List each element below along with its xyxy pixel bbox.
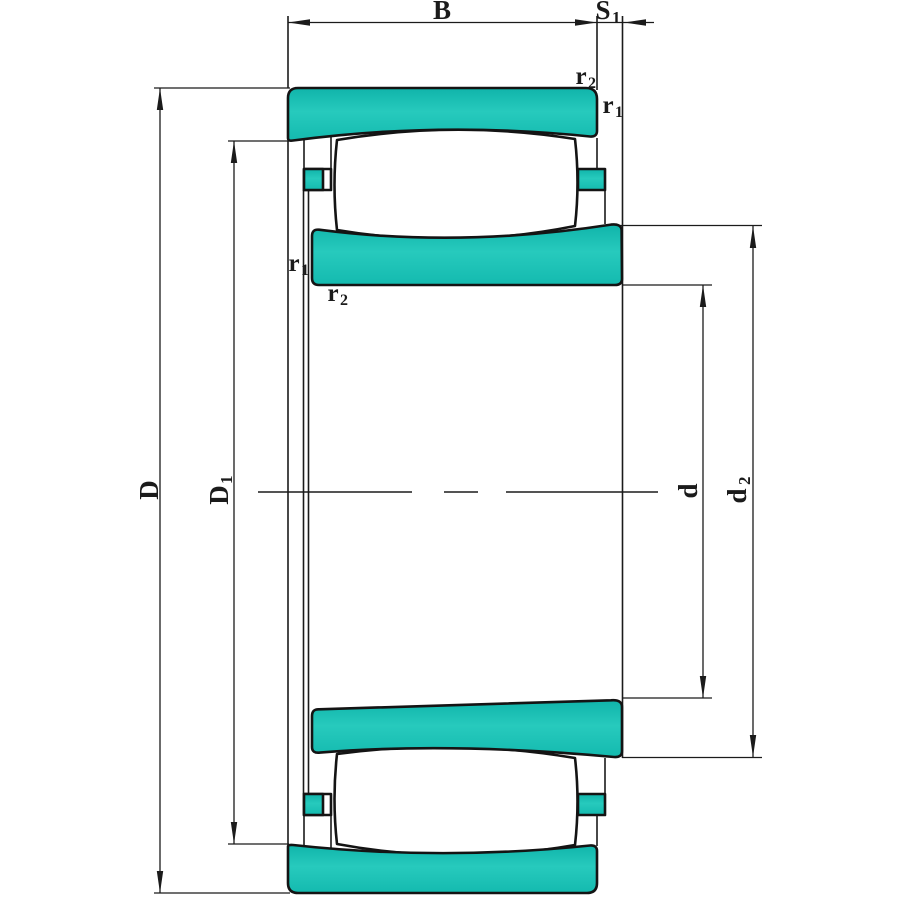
arrowhead	[231, 141, 237, 163]
arrowhead	[288, 19, 310, 25]
radius-label-r1-inner-sub: 1	[301, 262, 309, 279]
roller-top	[335, 130, 578, 239]
radius-label-r1-outer-sub: 1	[615, 104, 623, 121]
arrowhead	[231, 822, 237, 844]
dim-label-S1-sub: 1	[612, 8, 621, 27]
cage-bar-top-right	[578, 169, 605, 190]
radius-label-r1-outer: r	[602, 92, 613, 119]
arrowhead	[700, 285, 706, 307]
cage-bar-bottom-right	[578, 794, 605, 815]
arrowhead	[750, 226, 756, 248]
bearing-drawing-canvas: B S 1 r 2 r 1 r 1 r 2 D D 1 d d 2	[0, 0, 900, 900]
arrowhead	[575, 19, 597, 25]
cage-bar-top-left	[304, 169, 323, 190]
cage-pocket-bottom-left	[304, 815, 331, 849]
outer-ring-bottom-section	[288, 845, 597, 893]
arrowhead	[750, 735, 756, 757]
radius-label-r2-outer: r	[575, 63, 586, 90]
arrowhead	[624, 19, 646, 25]
arrowhead	[157, 88, 163, 110]
inner-ring-bottom-section	[312, 700, 622, 757]
cage-pocket-top-left	[304, 137, 331, 169]
dim-label-d2-sub: 2	[735, 477, 754, 486]
dim-label-D1-sub: 1	[217, 476, 236, 485]
radius-label-r2-inner: r	[327, 280, 338, 307]
dim-label-D: D	[134, 480, 164, 500]
dim-label-d2: d	[722, 488, 752, 503]
arrowhead	[700, 676, 706, 698]
radius-label-r2-inner-sub: 2	[340, 292, 348, 309]
roller-bottom	[335, 747, 578, 855]
radius-label-r2-outer-sub: 2	[588, 75, 596, 92]
cage-bar-bottom-left	[304, 794, 323, 815]
dim-label-D1: D	[204, 485, 234, 505]
dim-label-d: d	[673, 483, 703, 498]
dim-label-B: B	[433, 0, 451, 25]
bearing-diagram: B S 1 r 2 r 1 r 1 r 2 D D 1 d d 2	[0, 0, 900, 900]
radius-label-r1-inner: r	[288, 250, 299, 277]
dim-label-S1: S	[595, 0, 610, 25]
arrowhead	[157, 871, 163, 893]
